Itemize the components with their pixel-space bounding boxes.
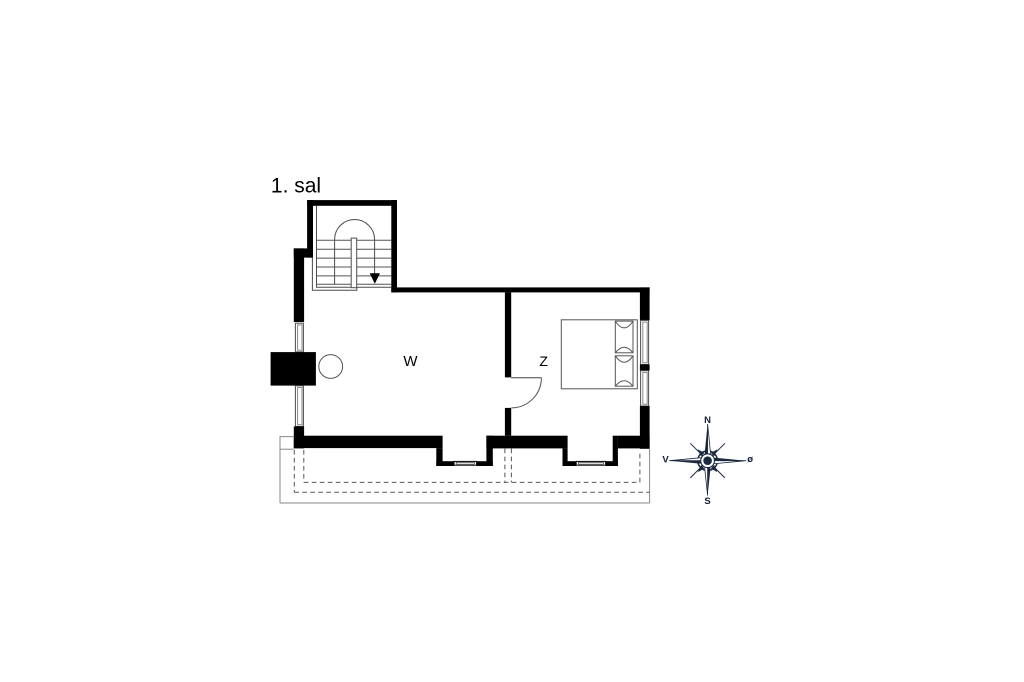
- svg-text:V: V: [662, 455, 669, 466]
- svg-text:W: W: [403, 353, 418, 370]
- svg-text:S: S: [704, 496, 710, 507]
- svg-text:ø: ø: [747, 454, 753, 465]
- svg-text:Z: Z: [539, 353, 548, 369]
- svg-text:1. sal: 1. sal: [271, 175, 321, 198]
- svg-text:N: N: [704, 415, 711, 426]
